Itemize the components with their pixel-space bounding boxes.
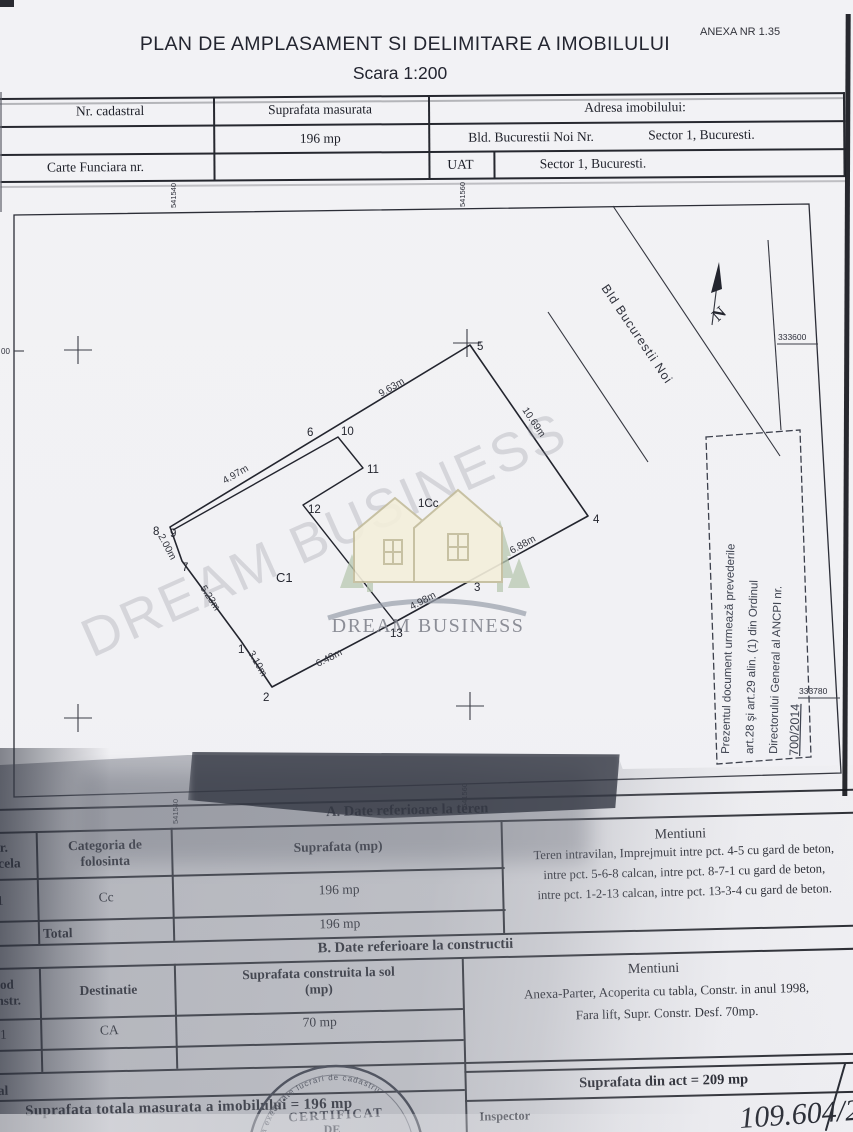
adresa-sector: Sector 1, Bucuresti. xyxy=(648,127,755,144)
point-label-2: 2 xyxy=(263,692,269,704)
building-outline xyxy=(173,437,395,622)
street-name-label: Bld Bucurestii Noi xyxy=(599,282,676,387)
tree-icon xyxy=(358,528,382,592)
watermark-diagonal-text: DREAM BUSINESS xyxy=(72,401,576,669)
section-a-row-nr: 1 xyxy=(0,892,40,910)
grid-label-right-upper: 333600 xyxy=(778,332,807,342)
house-icon xyxy=(414,490,502,582)
point-label-8: 8 xyxy=(153,526,159,538)
tree-icon xyxy=(340,554,364,588)
stamp-box-line2: art.28 şi art.29 alin. (1) din Ordinul xyxy=(744,580,761,754)
point-label-12: 12 xyxy=(308,504,321,516)
col-suprafata-masurata: Suprafata masurata xyxy=(220,101,420,118)
point-label-1: 1 xyxy=(238,644,244,656)
section-a-row-categoria: Cc xyxy=(42,888,170,907)
data-tables: A. Date referioare la teren Mentiuni Nr.… xyxy=(0,783,853,1132)
dim-label: 9.63m xyxy=(377,376,407,399)
section-a-total-label: Total xyxy=(43,925,73,942)
section-b-row-destinatie: CA xyxy=(45,1021,173,1040)
street-edge-line xyxy=(548,312,648,462)
table-line xyxy=(843,92,845,176)
dim-label: 6.48m xyxy=(314,647,344,669)
point-label-3: 3 xyxy=(474,582,480,594)
point-label-5: 5 xyxy=(477,341,483,353)
col-adresa: Adresa imobilului: xyxy=(440,98,830,117)
house-icon xyxy=(354,498,436,582)
dim-label: 2.00m xyxy=(155,532,178,562)
grid-cross xyxy=(453,329,481,357)
tree-icon xyxy=(508,558,530,588)
logo-swoosh xyxy=(328,601,526,618)
street-edge-line xyxy=(768,240,781,430)
identification-table: Nr. cadastral Suprafata masurata Adresa … xyxy=(0,0,853,203)
street-edge-line xyxy=(613,206,780,456)
uat-value: Sector 1, Bucuresti. xyxy=(505,155,680,172)
stamp-box-line4: 700/2014 xyxy=(787,704,802,757)
col-nr-cadastral: Nr. cadastral xyxy=(20,103,200,120)
section-a-row-suprafata: 196 mp xyxy=(179,878,499,902)
north-arrow-head xyxy=(711,262,722,293)
north-arrow-shaft xyxy=(712,268,719,325)
dim-label: 10.69m xyxy=(520,406,548,440)
section-b-col-mentiuni: Mentiuni xyxy=(486,958,821,982)
table-line xyxy=(171,828,175,941)
section-b-mentiuni-line1: Anexa-Parter, Acoperita cu tabla, Constr… xyxy=(471,979,853,1004)
section-b-total-label: Total xyxy=(0,1083,8,1100)
table-line xyxy=(0,148,845,155)
adresa-street: Bld. Bucurestii Noi Nr. xyxy=(468,129,594,146)
dim-label: 3.10m xyxy=(245,649,268,679)
table-line xyxy=(493,151,495,179)
land-use-label: 1Cc xyxy=(418,498,439,510)
section-a-mentiuni-line2: intre pct. 5-6-8 calcan, intre pct. 8-7-… xyxy=(502,860,853,884)
drawing-frame xyxy=(14,204,841,797)
point-label-9: 9 xyxy=(170,528,176,540)
table-line xyxy=(462,957,468,1132)
scanned-cadastral-plan: ANEXA NR 1.35 PLAN DE AMPLASAMENT SI DEL… xyxy=(0,0,853,1132)
section-b-col-destinatie: Destinatie xyxy=(44,981,172,1000)
grid-label-right-lower: 333780 xyxy=(799,686,828,696)
suprafata-value: 196 mp xyxy=(220,130,420,147)
grid-cross xyxy=(64,336,92,364)
dim-label: 5.23m xyxy=(197,584,221,613)
point-label-11: 11 xyxy=(367,464,379,476)
section-a-col-suprafata: Suprafata (mp) xyxy=(178,835,498,859)
table-line xyxy=(0,1039,464,1052)
footer-from-act: Suprafata din act = 209 mp xyxy=(499,1069,829,1094)
point-label-7: 7 xyxy=(182,562,188,574)
point-label-10: 10 xyxy=(341,426,354,438)
section-b-row-cod: 1 xyxy=(0,1026,44,1044)
legal-stamp-box: Prezentul document urmează prevederile a… xyxy=(706,430,811,764)
grid-cross xyxy=(456,692,484,720)
house-window-icon xyxy=(384,540,402,564)
house-window-icon xyxy=(448,534,468,560)
section-b-mentiuni-line2: Fara lift, Supr. Constr. Desf. 70mp. xyxy=(472,1001,853,1026)
parcel-boundary xyxy=(170,345,588,687)
point-label-6: 6 xyxy=(307,427,313,439)
point-label-4: 4 xyxy=(593,514,600,526)
building-label: C1 xyxy=(276,570,293,585)
table-line xyxy=(174,964,178,1069)
table-line xyxy=(213,96,215,180)
grid-label-left: 00 xyxy=(1,347,10,356)
logo-wordmark: DREAM BUSINESS xyxy=(332,615,525,637)
carte-funciara: Carte Funciara nr. xyxy=(10,159,180,176)
section-a-mentiuni-line3: intre pct. 1-2-13 calcan, intre pct. 13-… xyxy=(502,880,853,904)
agency-logo-watermark: DREAM BUSINESS xyxy=(328,490,530,637)
stamp-box-line3: Directorului General al ANCPI nr. xyxy=(768,586,784,754)
section-b-col-cod2: constr. xyxy=(0,992,43,1010)
footer-inspector-label: Inspector xyxy=(479,1108,530,1124)
grid-cross xyxy=(64,704,92,732)
stamp-box-line1: Prezentul document urmează prevederile xyxy=(720,544,738,755)
uat-label: UAT xyxy=(430,157,490,173)
section-a-col-categoria2: folosinta xyxy=(41,852,169,871)
stamp-box-border xyxy=(706,430,811,764)
tree-icon xyxy=(486,520,514,592)
point-label-13: 13 xyxy=(390,628,403,640)
section-a-col-nr2: parcela xyxy=(0,855,40,873)
dim-label: 4.98m xyxy=(408,590,438,613)
dim-label: 4.97m xyxy=(221,463,251,486)
dim-label: 6.88m xyxy=(508,534,538,557)
north-label: N xyxy=(708,302,730,325)
